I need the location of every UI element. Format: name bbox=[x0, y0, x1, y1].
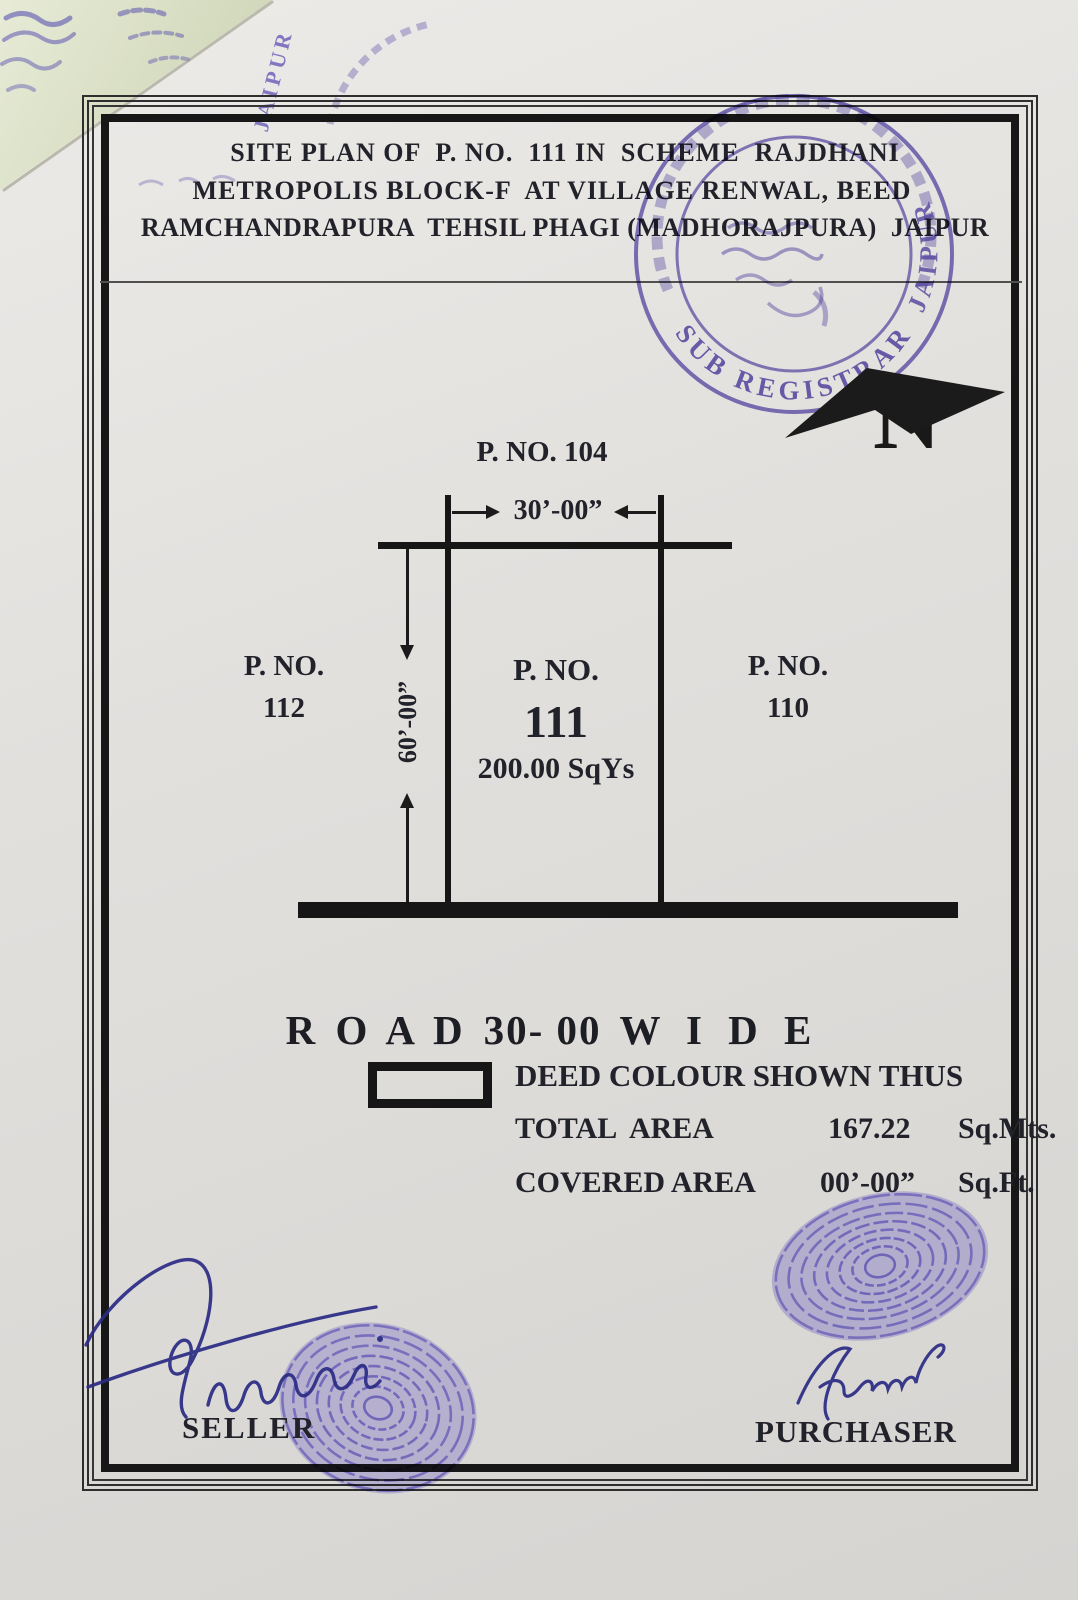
dim-height-line-top bbox=[406, 549, 409, 649]
plot-left-line bbox=[445, 495, 451, 907]
stamp-text-jaipur: JAIPUR bbox=[901, 196, 943, 316]
seller-signature bbox=[80, 1245, 415, 1435]
plot-111-number: 111 bbox=[524, 695, 588, 748]
plot-111-area: 200.00 SqYs bbox=[478, 752, 635, 786]
purchaser-signature bbox=[770, 1305, 980, 1425]
covered-area-label: COVERED AREA bbox=[515, 1166, 756, 1200]
dim-height-arrow-down-icon bbox=[400, 645, 414, 660]
plot-104-label: P. NO. 104 bbox=[476, 436, 607, 469]
dim-height-line-bottom bbox=[406, 806, 409, 902]
site-plan-document: JAIPUR SITE PLAN OF P. NO. 111 IN SCHEME… bbox=[0, 0, 1078, 1600]
purchaser-label: PURCHASER bbox=[755, 1414, 957, 1450]
dim-width-arrow-right-icon bbox=[486, 505, 500, 519]
road-size: 30- 00 bbox=[484, 1006, 602, 1054]
total-area-unit: Sq.Mts. bbox=[958, 1112, 1056, 1146]
dim-width-line-right bbox=[626, 511, 656, 514]
deed-colour-swatch bbox=[368, 1062, 492, 1108]
wide-word: W I D E bbox=[619, 1006, 819, 1054]
north-arrow-icon: N bbox=[755, 348, 1025, 460]
road-line bbox=[298, 902, 958, 918]
plot-right-line bbox=[658, 495, 664, 907]
dim-width-text: 30’-00” bbox=[514, 495, 603, 527]
plot-110-line1: P. NO. bbox=[748, 650, 828, 683]
plot-112-line1: P. NO. bbox=[244, 650, 324, 683]
deed-colour-text: DEED COLOUR SHOWN THUS bbox=[515, 1058, 963, 1094]
plot-112-line2: 112 bbox=[263, 692, 305, 725]
plot-110-line2: 110 bbox=[767, 692, 809, 725]
dim-height-text: 60’-00” bbox=[393, 681, 423, 763]
plot-top-line bbox=[378, 542, 732, 549]
svg-text:JAIPUR: JAIPUR bbox=[901, 196, 943, 316]
total-area-value: 167.22 bbox=[828, 1112, 911, 1146]
total-area-label: TOTAL AREA bbox=[515, 1112, 714, 1146]
road-word: R O A D bbox=[286, 1006, 468, 1054]
dim-width-line-left bbox=[452, 511, 488, 514]
plot-111-line1: P. NO. bbox=[513, 652, 599, 688]
seller-label: SELLER bbox=[182, 1410, 316, 1446]
